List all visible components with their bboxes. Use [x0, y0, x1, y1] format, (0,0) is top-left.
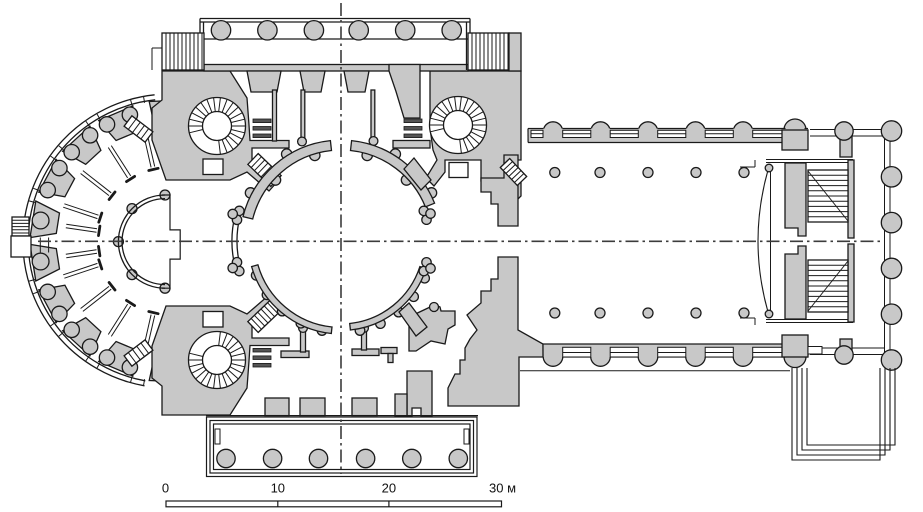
- svg-text:0: 0: [162, 481, 169, 496]
- svg-text:30 м: 30 м: [489, 481, 516, 496]
- svg-text:10: 10: [271, 481, 285, 496]
- svg-text:20: 20: [382, 481, 396, 496]
